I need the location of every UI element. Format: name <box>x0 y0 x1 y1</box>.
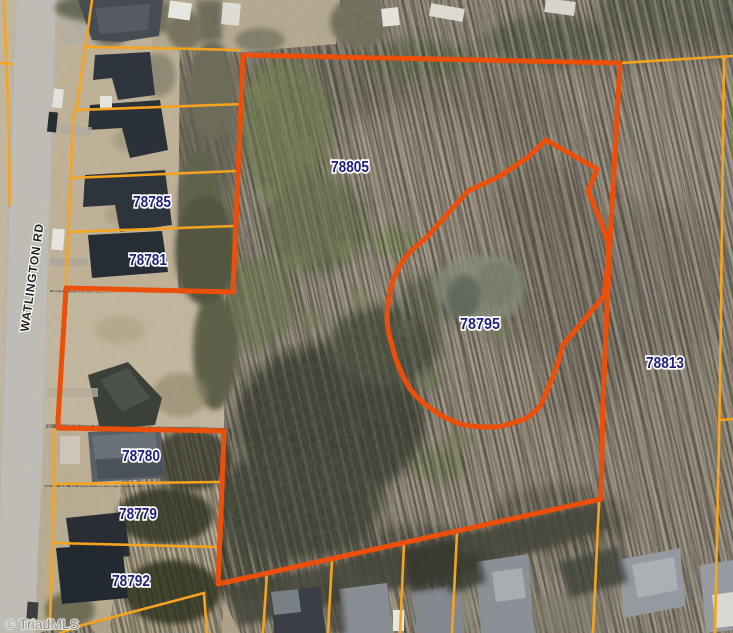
svg-text:78780: 78780 <box>122 448 160 465</box>
svg-text:78792: 78792 <box>112 573 150 590</box>
svg-text:78805: 78805 <box>331 159 369 176</box>
svg-text:78785: 78785 <box>133 194 171 211</box>
svg-text:78779: 78779 <box>119 506 157 523</box>
svg-text:78781: 78781 <box>129 252 167 269</box>
svg-text:78795: 78795 <box>460 316 500 333</box>
svg-text:78813: 78813 <box>646 355 684 372</box>
svg-text:© TriadMLS: © TriadMLS <box>5 616 79 632</box>
